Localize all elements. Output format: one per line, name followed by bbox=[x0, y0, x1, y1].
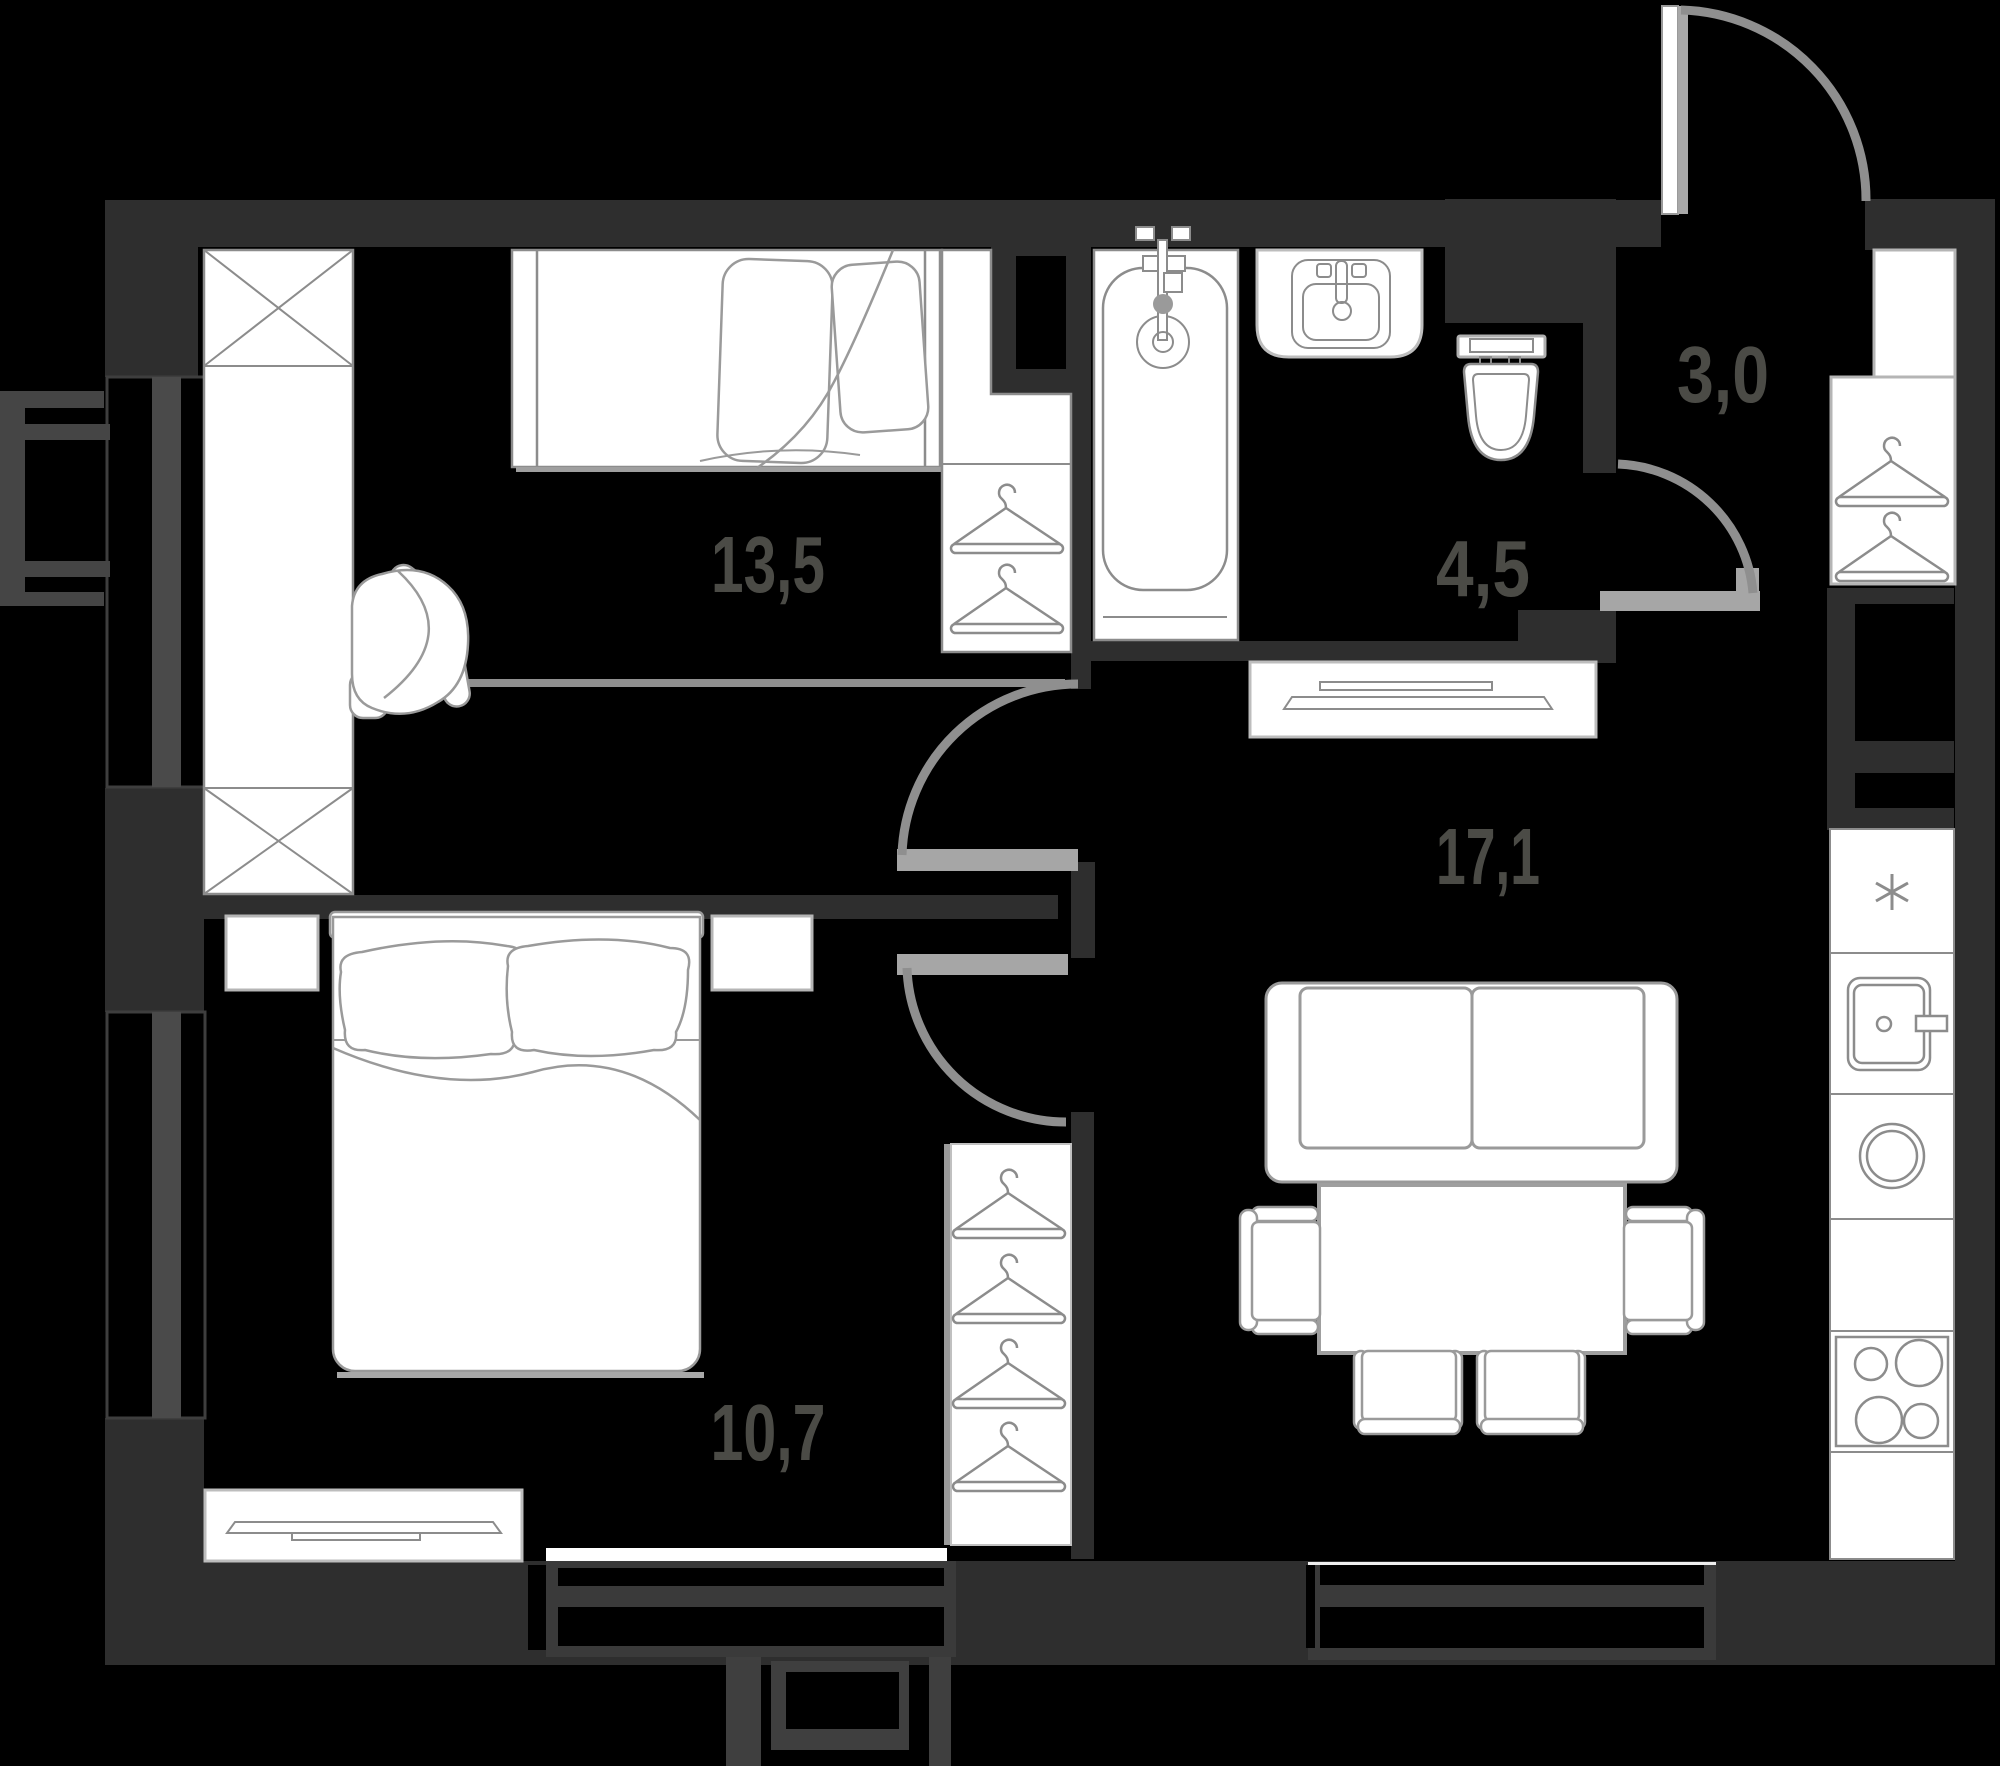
svg-text:17,1: 17,1 bbox=[1436, 812, 1540, 901]
svg-text:10,7: 10,7 bbox=[711, 1388, 826, 1477]
svg-text:4,5: 4,5 bbox=[1436, 524, 1530, 613]
svg-text:3,0: 3,0 bbox=[1677, 330, 1769, 419]
svg-text:13,5: 13,5 bbox=[711, 520, 825, 609]
